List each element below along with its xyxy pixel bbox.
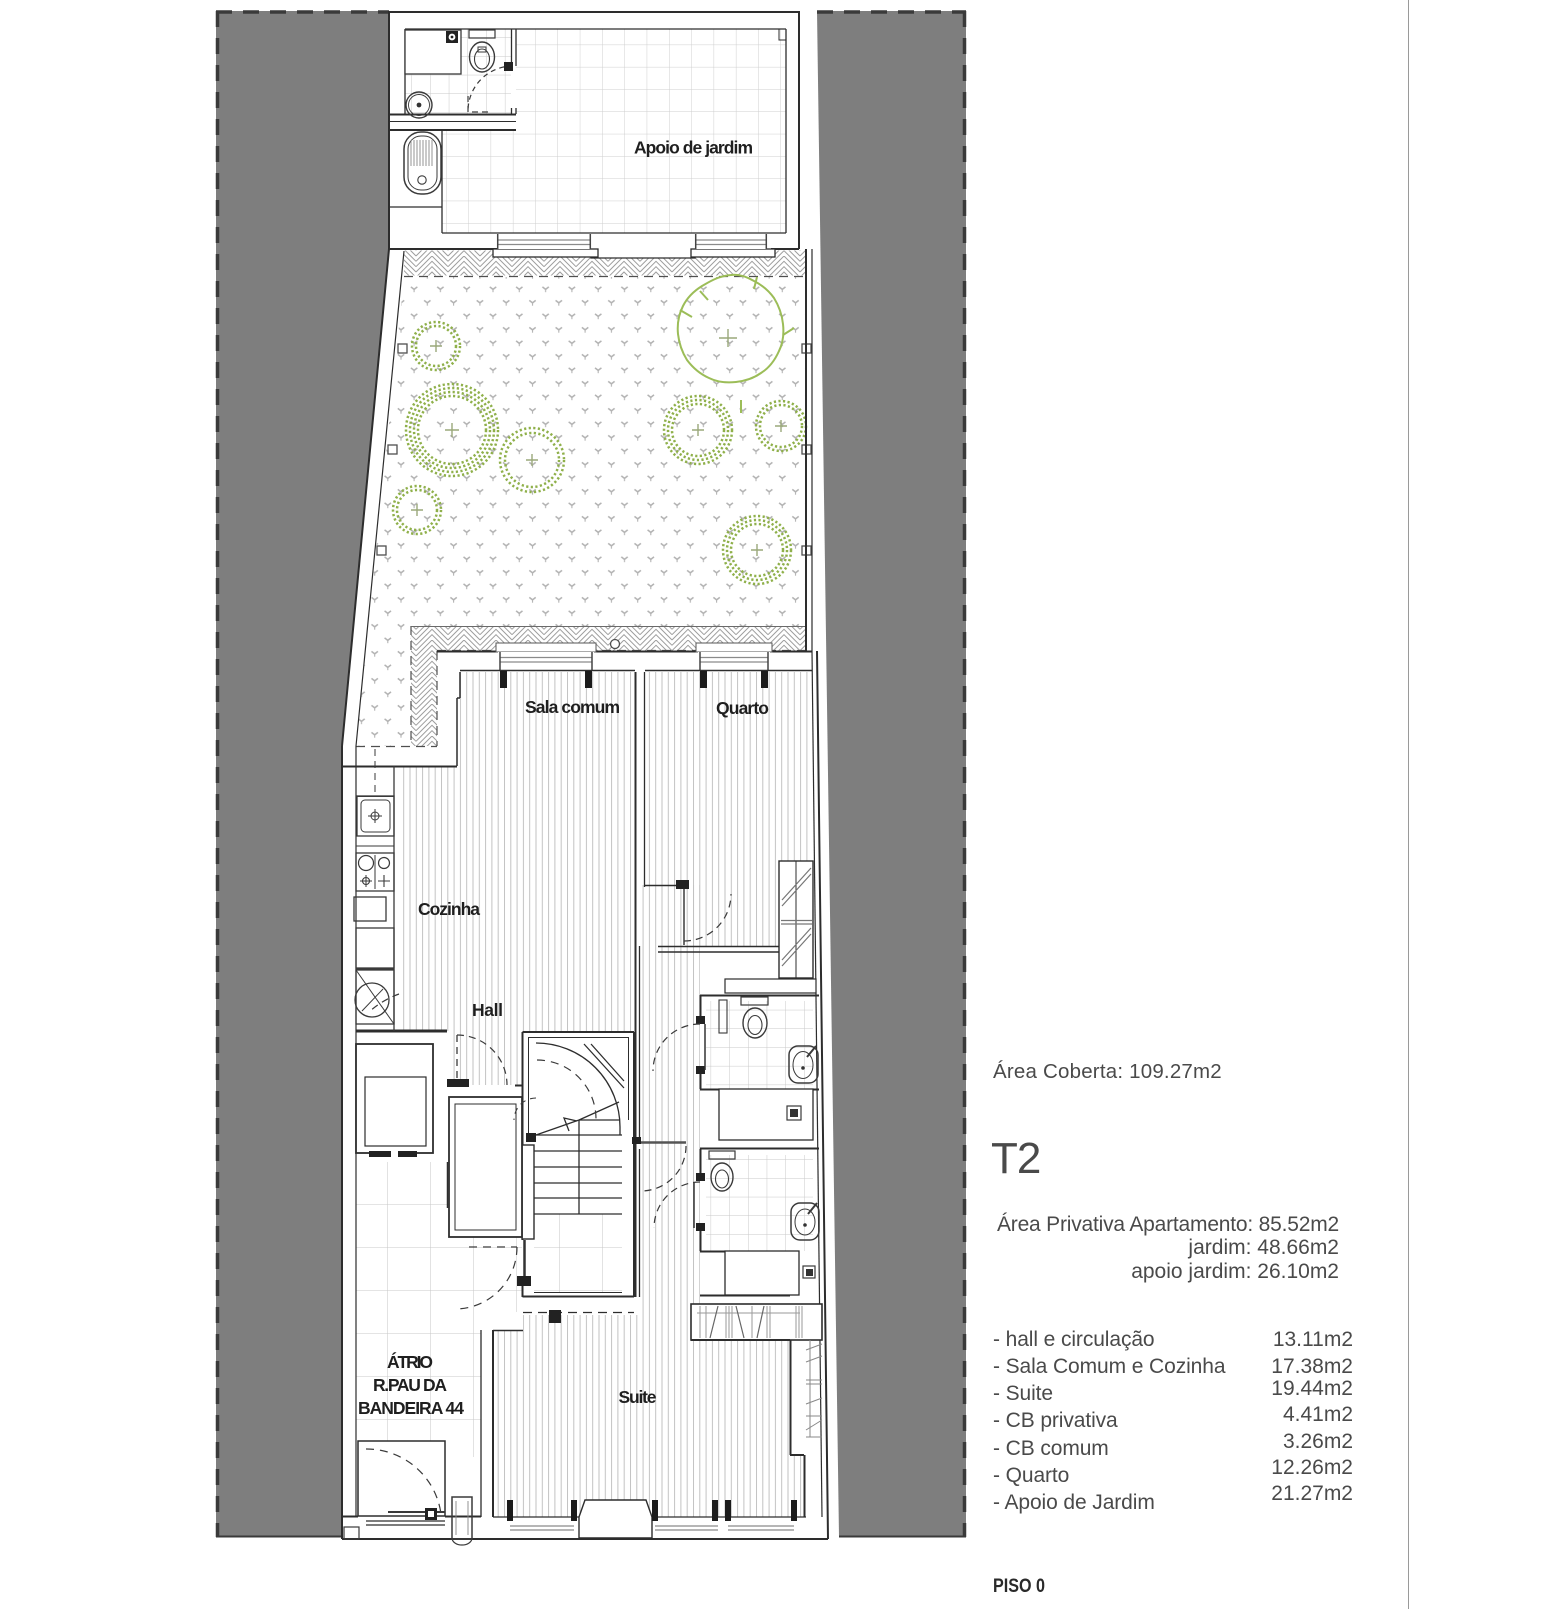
svg-text:ÁTRIO: ÁTRIO bbox=[387, 1351, 433, 1372]
svg-text:- Sala Comum e Cozinha: - Sala Comum e Cozinha bbox=[993, 1355, 1226, 1378]
svg-text:Cozinha: Cozinha bbox=[418, 899, 480, 919]
svg-text:- CB comum: - CB comum bbox=[993, 1437, 1109, 1460]
svg-text:Suite: Suite bbox=[619, 1387, 657, 1407]
svg-text:- Suite: - Suite bbox=[993, 1382, 1053, 1405]
svg-text:19.44m2: 19.44m2 bbox=[1271, 1377, 1353, 1400]
svg-text:R.PAU DA: R.PAU DA bbox=[373, 1375, 447, 1395]
svg-text:BANDEIRA 44: BANDEIRA 44 bbox=[358, 1398, 464, 1418]
svg-text:PISO 0: PISO 0 bbox=[993, 1575, 1045, 1597]
svg-text:- CB privativa: - CB privativa bbox=[993, 1409, 1118, 1432]
svg-text:Sala comum: Sala comum bbox=[525, 697, 620, 717]
svg-text:21.27m2: 21.27m2 bbox=[1271, 1482, 1353, 1505]
svg-text:- Apoio de Jardim: - Apoio de Jardim bbox=[993, 1491, 1155, 1514]
svg-text:4.41m2: 4.41m2 bbox=[1283, 1403, 1353, 1426]
svg-text:17.38m2: 17.38m2 bbox=[1271, 1355, 1353, 1378]
svg-text:Hall: Hall bbox=[472, 1000, 503, 1020]
svg-text:jardim: 48.66m2: jardim: 48.66m2 bbox=[1187, 1236, 1339, 1259]
svg-text:Quarto: Quarto bbox=[716, 698, 769, 718]
svg-text:- Quarto: - Quarto bbox=[993, 1464, 1069, 1487]
svg-text:12.26m2: 12.26m2 bbox=[1271, 1456, 1353, 1479]
svg-text:13.11m2: 13.11m2 bbox=[1273, 1328, 1353, 1351]
svg-text:T2: T2 bbox=[991, 1134, 1040, 1183]
svg-text:Apoio de jardim: Apoio de jardim bbox=[634, 138, 753, 158]
svg-text:Área Privativa Apartamento: 85: Área Privativa Apartamento: 85.52m2 bbox=[997, 1213, 1339, 1236]
svg-text:3.26m2: 3.26m2 bbox=[1283, 1430, 1353, 1453]
svg-text:- hall e circulação: - hall e circulação bbox=[993, 1328, 1155, 1351]
svg-text:apoio jardim: 26.10m2: apoio jardim: 26.10m2 bbox=[1131, 1260, 1339, 1283]
svg-text:Área Coberta: 109.27m2: Área Coberta: 109.27m2 bbox=[993, 1060, 1222, 1083]
